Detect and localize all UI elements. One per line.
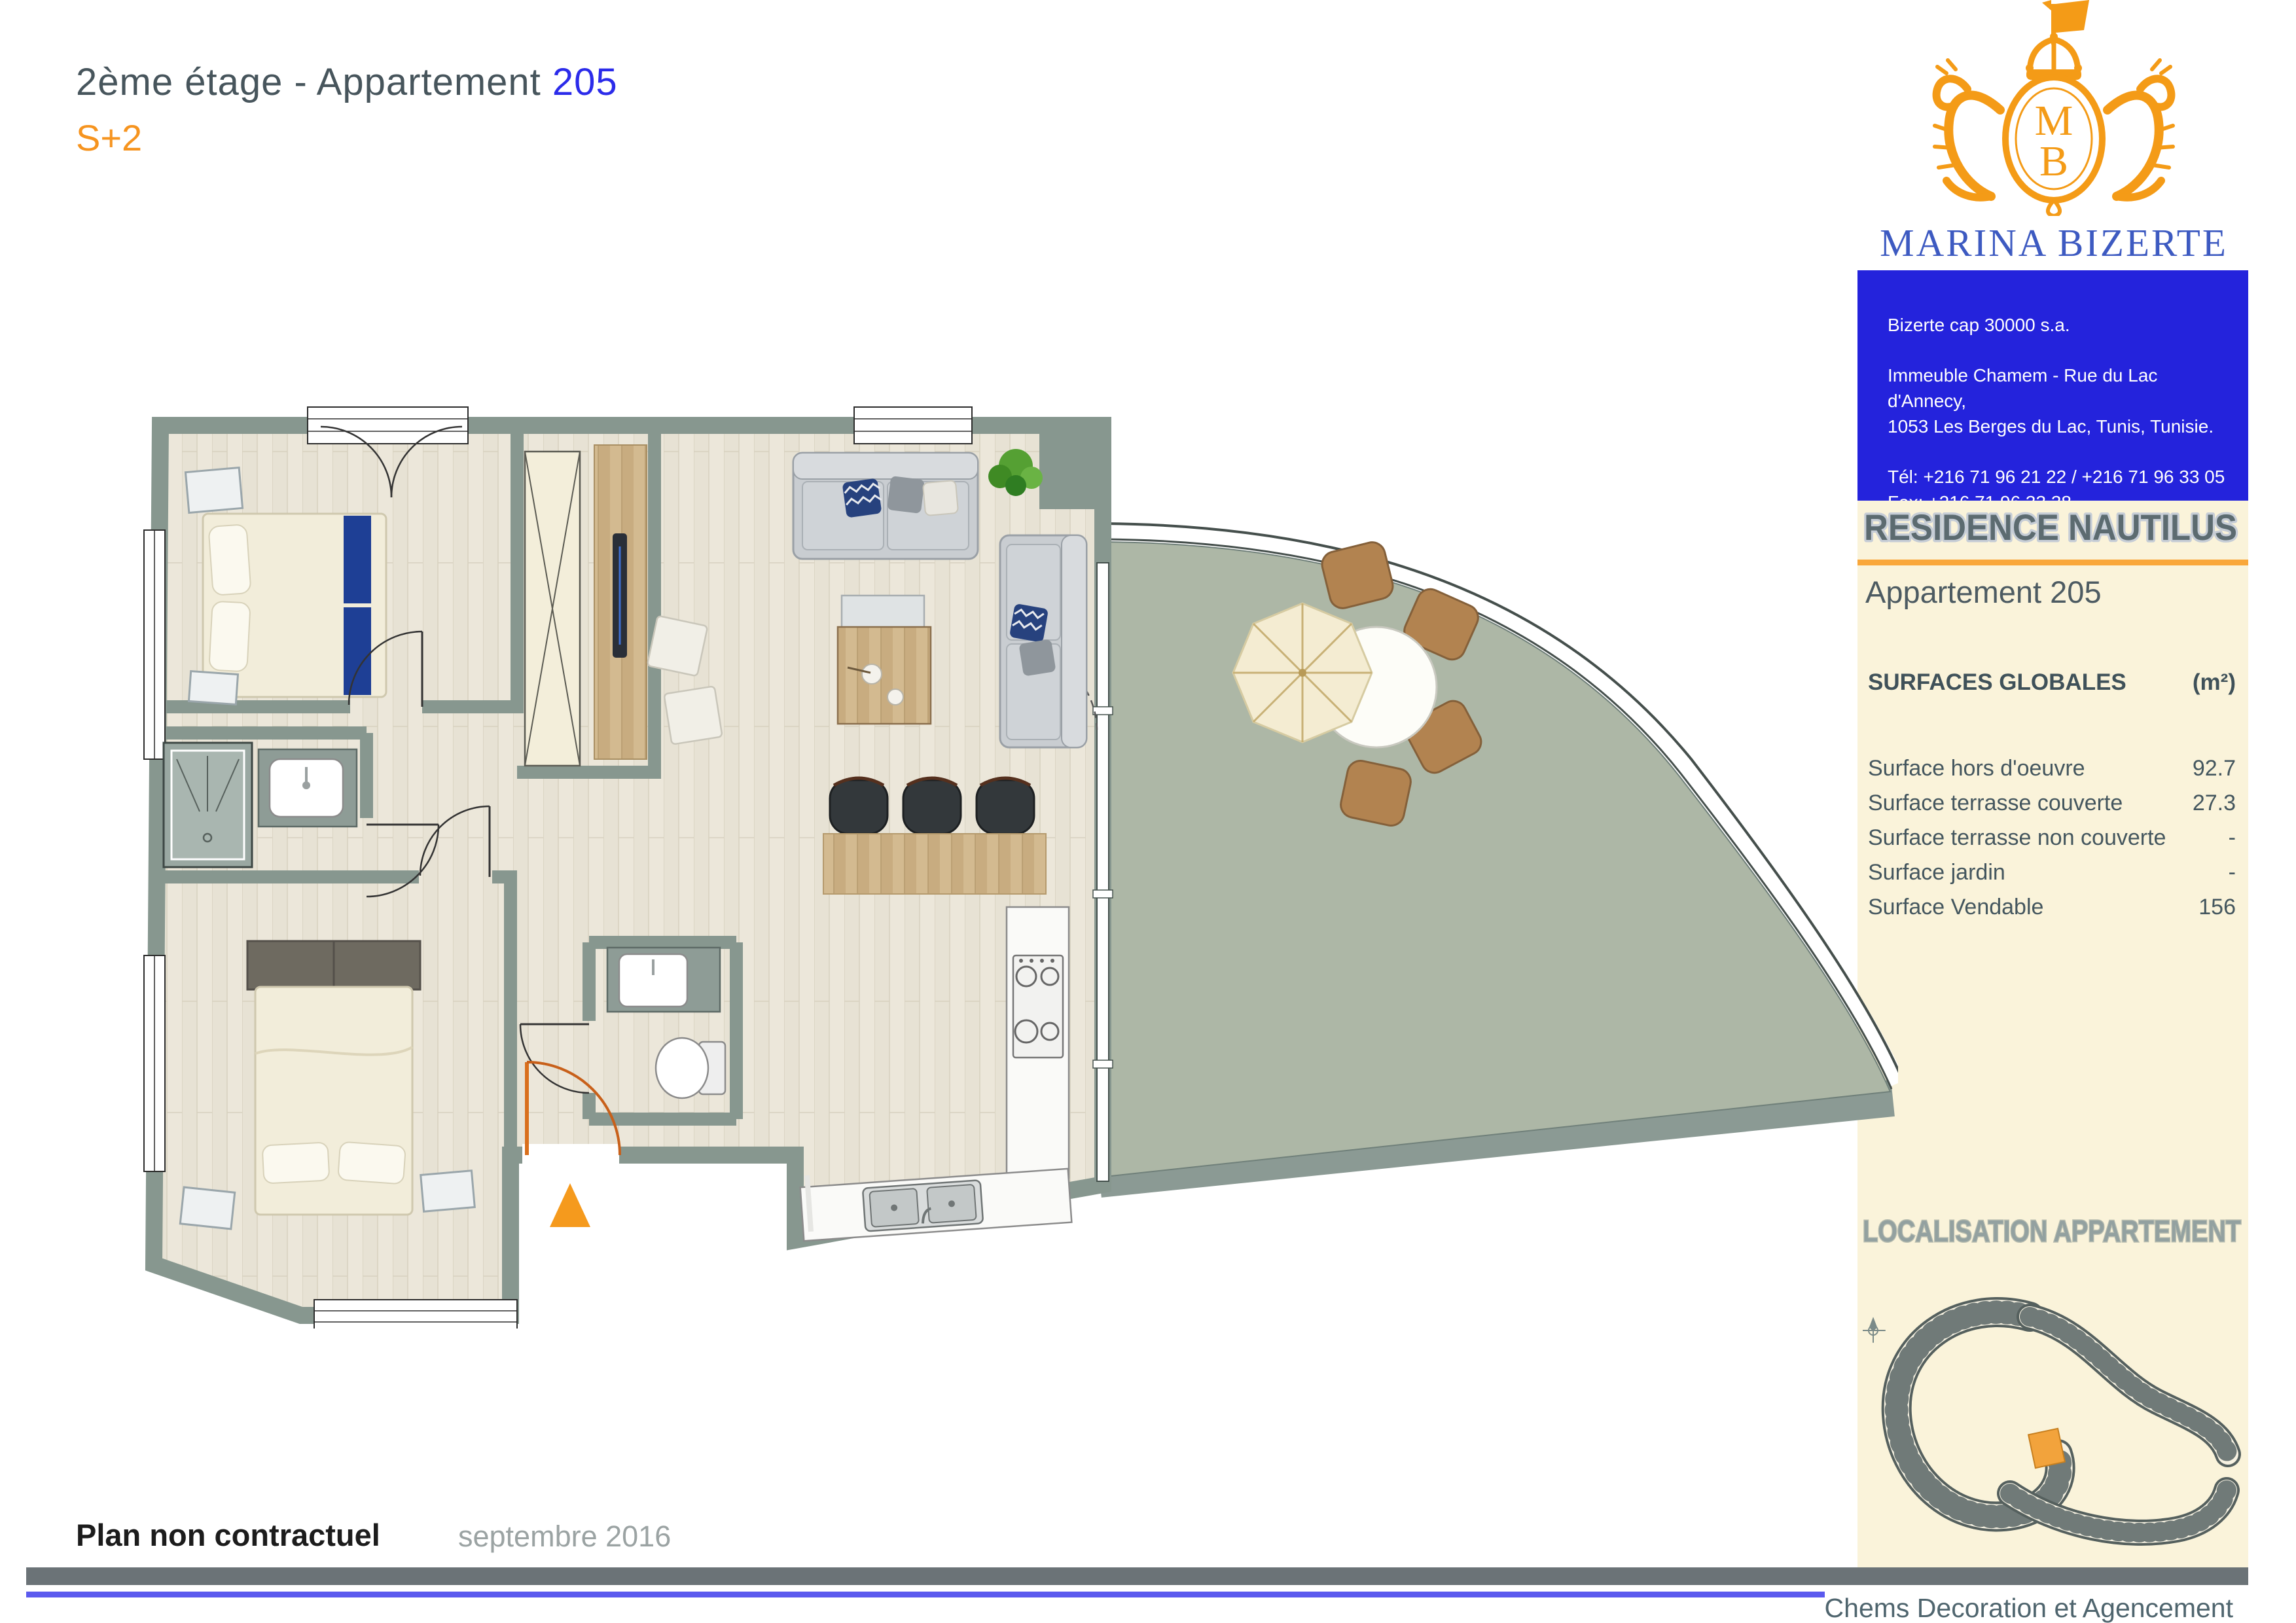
contact-address-2: 1053 Les Berges du Lac, Tunis, Tunisie.	[1888, 414, 2235, 439]
page-title-text: 2ème étage - Appartement	[76, 61, 552, 103]
residence-title: RESIDENCE NAUTILUS	[1864, 507, 2237, 548]
contact-address-1: Immeuble Chamem - Rue du Lac d'Annecy,	[1888, 363, 2235, 414]
bathroom-sink	[259, 749, 357, 827]
coffee-table	[838, 596, 931, 724]
table-row: Surface jardin -	[1868, 860, 2236, 895]
surface-label: Surface terrasse non couverte	[1868, 825, 2166, 851]
tv-panel	[594, 445, 647, 759]
crest-seahorse-left	[1935, 60, 2000, 198]
nightstand-mirror	[421, 1171, 475, 1212]
table-row: Surface hors d'oeuvre 92.7	[1868, 756, 2236, 791]
nightstand-mirror	[180, 1187, 234, 1229]
floor-plan	[92, 366, 1898, 1329]
window	[308, 407, 468, 444]
plan-disclaimer: Plan non contractuel	[76, 1517, 380, 1553]
floor-cushion	[647, 616, 708, 677]
contact-company: Bizerte cap 30000 s.a.	[1888, 312, 2235, 338]
nightstand-mirror	[185, 468, 242, 513]
surfaces-header-label: SURFACES GLOBALES	[1868, 669, 2126, 696]
surface-value: -	[2229, 860, 2236, 885]
apartment-number: 205	[552, 61, 618, 103]
localisation-heading: LOCALISATION APPARTEMENT	[1857, 1209, 2248, 1255]
wardrobe	[525, 452, 580, 766]
page: 2ème étage - Appartement 205 S+2	[0, 0, 2296, 1623]
brand-block: M B MARINA BIZERTE TUNISIA	[1857, 0, 2250, 299]
bar-stools	[830, 778, 1034, 834]
panel-orange-rule	[1857, 560, 2248, 565]
chevron-pillow	[842, 478, 884, 518]
surface-value: -	[2229, 825, 2236, 851]
surface-value: 27.3	[2193, 791, 2236, 816]
entrance-arrow	[550, 1183, 590, 1227]
footer-blue-line	[26, 1592, 1825, 1597]
floor-cushion	[664, 686, 722, 744]
table-row: Surface terrasse non couverte -	[1868, 825, 2236, 860]
living-sofa-1	[793, 453, 978, 559]
parasol-icon	[1233, 603, 1372, 742]
contact-box: Bizerte cap 30000 s.a. Immeuble Chamem -…	[1857, 270, 2248, 501]
toilet	[656, 1038, 725, 1098]
nightstand-mirror	[188, 671, 238, 705]
site-map-highlighted-unit	[2028, 1429, 2065, 1468]
site-map	[1863, 1268, 2242, 1556]
apartment-type-label: S+2	[76, 116, 142, 159]
footer-credit: Chems Decoration et Agencement	[1825, 1593, 2233, 1623]
shower	[164, 743, 252, 867]
entrance-opening	[522, 1144, 619, 1166]
living-sofa-2	[1000, 535, 1086, 747]
kitchen-stove	[1013, 955, 1063, 1058]
brand-name: MARINA BIZERTE	[1857, 221, 2250, 266]
table-row: Surface Vendable 156	[1868, 895, 2236, 929]
surface-value: 156	[2198, 895, 2236, 920]
crest-monogram-b: B	[2039, 137, 2068, 185]
surface-label: Surface hors d'oeuvre	[1868, 756, 2085, 781]
wall-block	[1039, 418, 1111, 509]
plan-date: septembre 2016	[458, 1520, 671, 1554]
window	[144, 530, 165, 759]
surfaces-table: SURFACES GLOBALES (m²) Surface hors d'oe…	[1868, 669, 2236, 929]
site-map-building-hook	[1897, 1312, 2060, 1516]
window	[854, 407, 972, 444]
panel-apartment-label: Appartement 205	[1865, 574, 2102, 610]
crest-crown	[2026, 33, 2082, 80]
marina-bizerte-crest-icon: M B	[1916, 0, 2191, 216]
info-panel: RESIDENCE NAUTILUS Appartement 205 SURFA…	[1857, 501, 2248, 1567]
crest-seahorse-right	[2108, 60, 2173, 198]
chevron-pillow	[1009, 603, 1049, 643]
pillow	[1018, 639, 1056, 676]
bed-2	[247, 941, 420, 1215]
surface-label: Surface terrasse couverte	[1868, 791, 2123, 816]
table-row: Surface terrasse couverte 27.3	[1868, 791, 2236, 825]
page-title: 2ème étage - Appartement 205	[76, 60, 618, 104]
kitchen-sink	[863, 1180, 983, 1231]
terrace	[1100, 524, 1898, 1179]
window	[314, 1300, 517, 1329]
residence-heading: RESIDENCE NAUTILUS	[1857, 501, 2248, 556]
footer-gray-bar	[26, 1567, 2248, 1585]
crest-flag	[2056, 0, 2089, 33]
terrace-floor	[1105, 542, 1890, 1177]
contact-tel: Tél: +216 71 96 21 22 / +216 71 96 33 05	[1888, 464, 2235, 490]
surface-value: 92.7	[2193, 756, 2236, 781]
window	[144, 955, 165, 1171]
pillow	[923, 480, 958, 516]
bar-counter	[823, 834, 1046, 894]
surfaces-header-unit: (m²)	[2193, 669, 2236, 696]
pillow	[887, 476, 925, 514]
localisation-title: LOCALISATION APPARTEMENT	[1863, 1214, 2241, 1248]
